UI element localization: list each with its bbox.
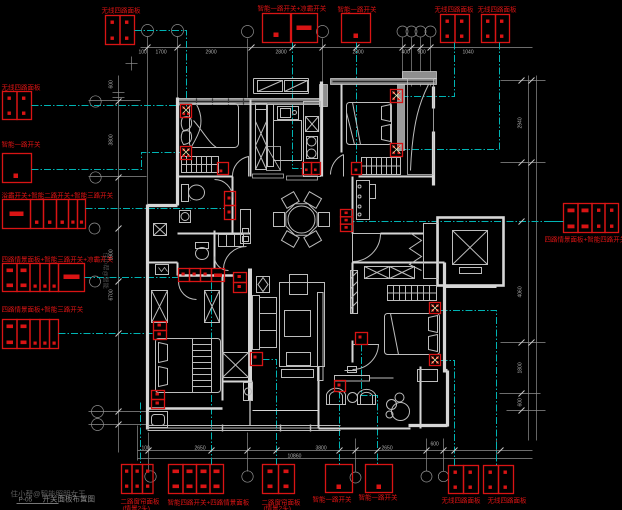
svg-text:四路情景面板+智能四路开关: 四路情景面板+智能四路开关 [545,235,622,244]
svg-text:3800: 3800 [109,134,115,145]
svg-text:600: 600 [109,80,115,89]
svg-text:浴霸开关+智能二路开关+智能三路开关: 浴霸开关+智能二路开关+智能三路开关 [2,191,114,200]
svg-text:无线四路面板: 无线四路面板 [478,5,518,14]
svg-text:智能四路开关+四路情景面板: 智能四路开关+四路情景面板 [168,498,250,507]
svg-text:智能一路开关+凉霸开关: 智能一路开关+凉霸开关 [258,4,327,13]
svg-text:智能一路开关: 智能一路开关 [313,495,353,504]
svg-text:四路情景面板+智能三路开关: 四路情景面板+智能三路开关 [2,305,84,314]
svg-text:2940: 2940 [518,117,524,128]
svg-text:无线四路面板: 无线四路面板 [435,5,475,14]
svg-text:100: 100 [139,50,148,56]
svg-text:2900: 2900 [206,50,217,56]
svg-text:开关面板布置图: 开关面板布置图 [43,494,96,504]
svg-text:智能一路开关: 智能一路开关 [2,140,42,149]
svg-text:900: 900 [418,50,427,56]
svg-text:3800: 3800 [316,446,327,452]
svg-text:无线四路面板: 无线四路面板 [102,6,142,15]
svg-text:600: 600 [431,442,440,448]
svg-text:智能一路开关: 智能一路开关 [359,493,399,502]
svg-text:2800: 2800 [276,50,287,56]
svg-text:住小帮@智能: 住小帮@智能 [102,253,110,289]
svg-text:2650: 2650 [195,446,206,452]
svg-text:6700: 6700 [109,289,115,300]
svg-text:智能一路开关: 智能一路开关 [338,5,378,14]
svg-text:2650: 2650 [382,446,393,452]
svg-text:10860: 10860 [288,454,302,460]
svg-text:二路窗帘面板: 二路窗帘面板 [121,497,161,506]
svg-text:1800: 1800 [518,362,524,373]
svg-text:1700: 1700 [156,50,167,56]
svg-text:P-05: P-05 [19,497,33,504]
svg-text:4060: 4060 [518,286,524,297]
svg-text:无线四路面板: 无线四路面板 [488,496,528,505]
svg-text:四路情景面板+智能三路开关+凉霸开关: 四路情景面板+智能三路开关+凉霸开关 [2,255,114,264]
svg-text:600: 600 [518,398,524,407]
svg-text:1040: 1040 [463,50,474,56]
svg-text:无线四路面板: 无线四路面板 [2,83,42,92]
svg-text:无线四路面板: 无线四路面板 [442,496,482,505]
